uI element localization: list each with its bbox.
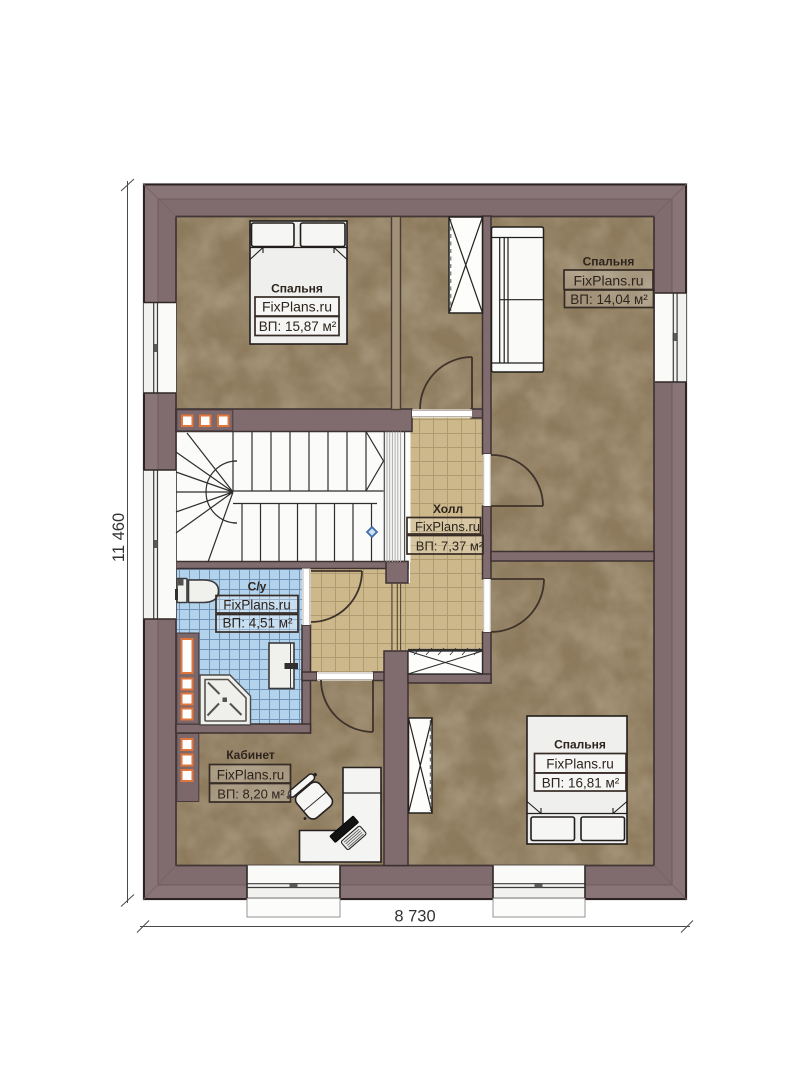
svg-text:8 730: 8 730 xyxy=(394,908,435,926)
svg-text:Спальня: Спальня xyxy=(583,255,635,269)
svg-text:Холл: Холл xyxy=(433,502,463,516)
svg-text:ВП: 7,37 м²: ВП: 7,37 м² xyxy=(416,539,484,554)
svg-text:ВП: 8,20 м²: ВП: 8,20 м² xyxy=(217,787,285,802)
svg-text:ВП: 14,04 м²: ВП: 14,04 м² xyxy=(570,292,648,307)
svg-text:Спальня: Спальня xyxy=(554,738,606,752)
svg-text:FixPlans.ru: FixPlans.ru xyxy=(546,757,614,772)
svg-text:11 460: 11 460 xyxy=(110,513,128,562)
svg-text:FixPlans.ru: FixPlans.ru xyxy=(573,273,643,289)
svg-text:Спальня: Спальня xyxy=(271,282,323,296)
svg-text:FixPlans.ru: FixPlans.ru xyxy=(217,768,285,783)
svg-text:FixPlans.ru: FixPlans.ru xyxy=(262,299,332,315)
svg-text:FixPlans.ru: FixPlans.ru xyxy=(223,598,291,613)
svg-text:ВП: 15,87 м²: ВП: 15,87 м² xyxy=(259,319,337,334)
svg-text:FixPlans.ru: FixPlans.ru xyxy=(415,519,480,534)
svg-text:Кабинет: Кабинет xyxy=(226,748,275,762)
svg-text:С/у: С/у xyxy=(248,580,267,594)
svg-text:ВП: 4,51 м²: ВП: 4,51 м² xyxy=(222,616,293,631)
svg-text:ВП: 16,81 м²: ВП: 16,81 м² xyxy=(542,776,620,791)
